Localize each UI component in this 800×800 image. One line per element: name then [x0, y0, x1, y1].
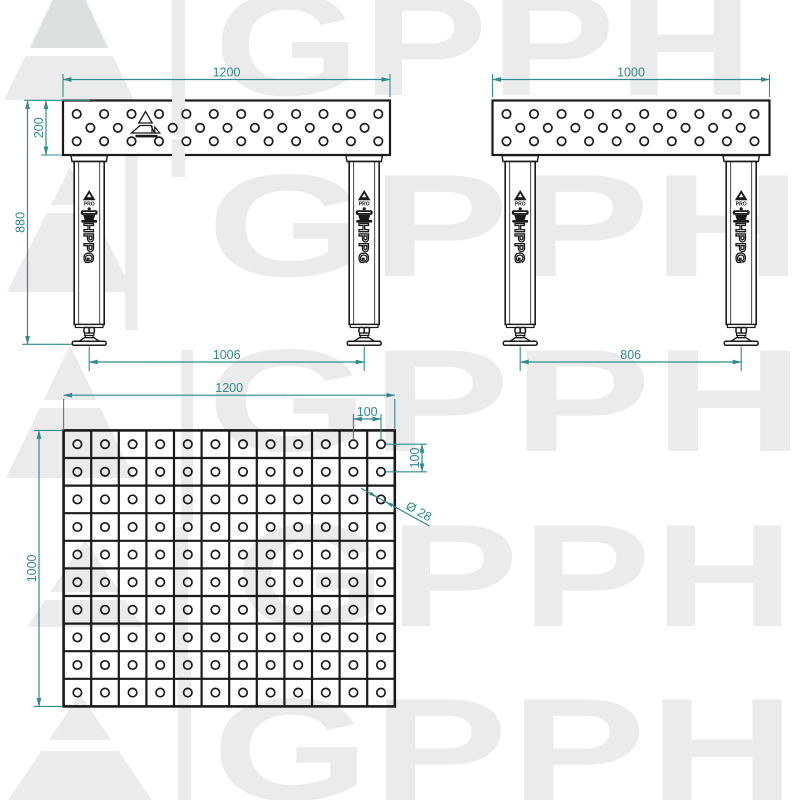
svg-text:806: 806 — [620, 348, 641, 362]
svg-text:PRO: PRO — [736, 202, 747, 208]
svg-text:1200: 1200 — [215, 381, 243, 395]
svg-text:880: 880 — [14, 212, 28, 233]
svg-text:1006: 1006 — [213, 348, 241, 362]
svg-text:200: 200 — [32, 117, 46, 138]
svg-text:1000: 1000 — [25, 554, 39, 582]
svg-text:PRO: PRO — [515, 202, 526, 208]
svg-text:1200: 1200 — [213, 66, 241, 80]
svg-text:HPPG: HPPG — [512, 223, 528, 264]
svg-text:HPPG: HPPG — [356, 223, 372, 264]
svg-text:GPPH: GPPH — [235, 494, 797, 657]
svg-text:HPPG: HPPG — [733, 223, 749, 264]
svg-text:GPPH: GPPH — [207, 144, 800, 307]
svg-text:PRO: PRO — [359, 202, 370, 208]
svg-text:HPPG: HPPG — [81, 223, 97, 264]
svg-text:PRO: PRO — [84, 202, 95, 208]
svg-text:GPPH: GPPH — [212, 668, 798, 800]
svg-text:100: 100 — [408, 448, 422, 469]
svg-text:100: 100 — [357, 405, 378, 419]
svg-text:1000: 1000 — [617, 66, 645, 80]
